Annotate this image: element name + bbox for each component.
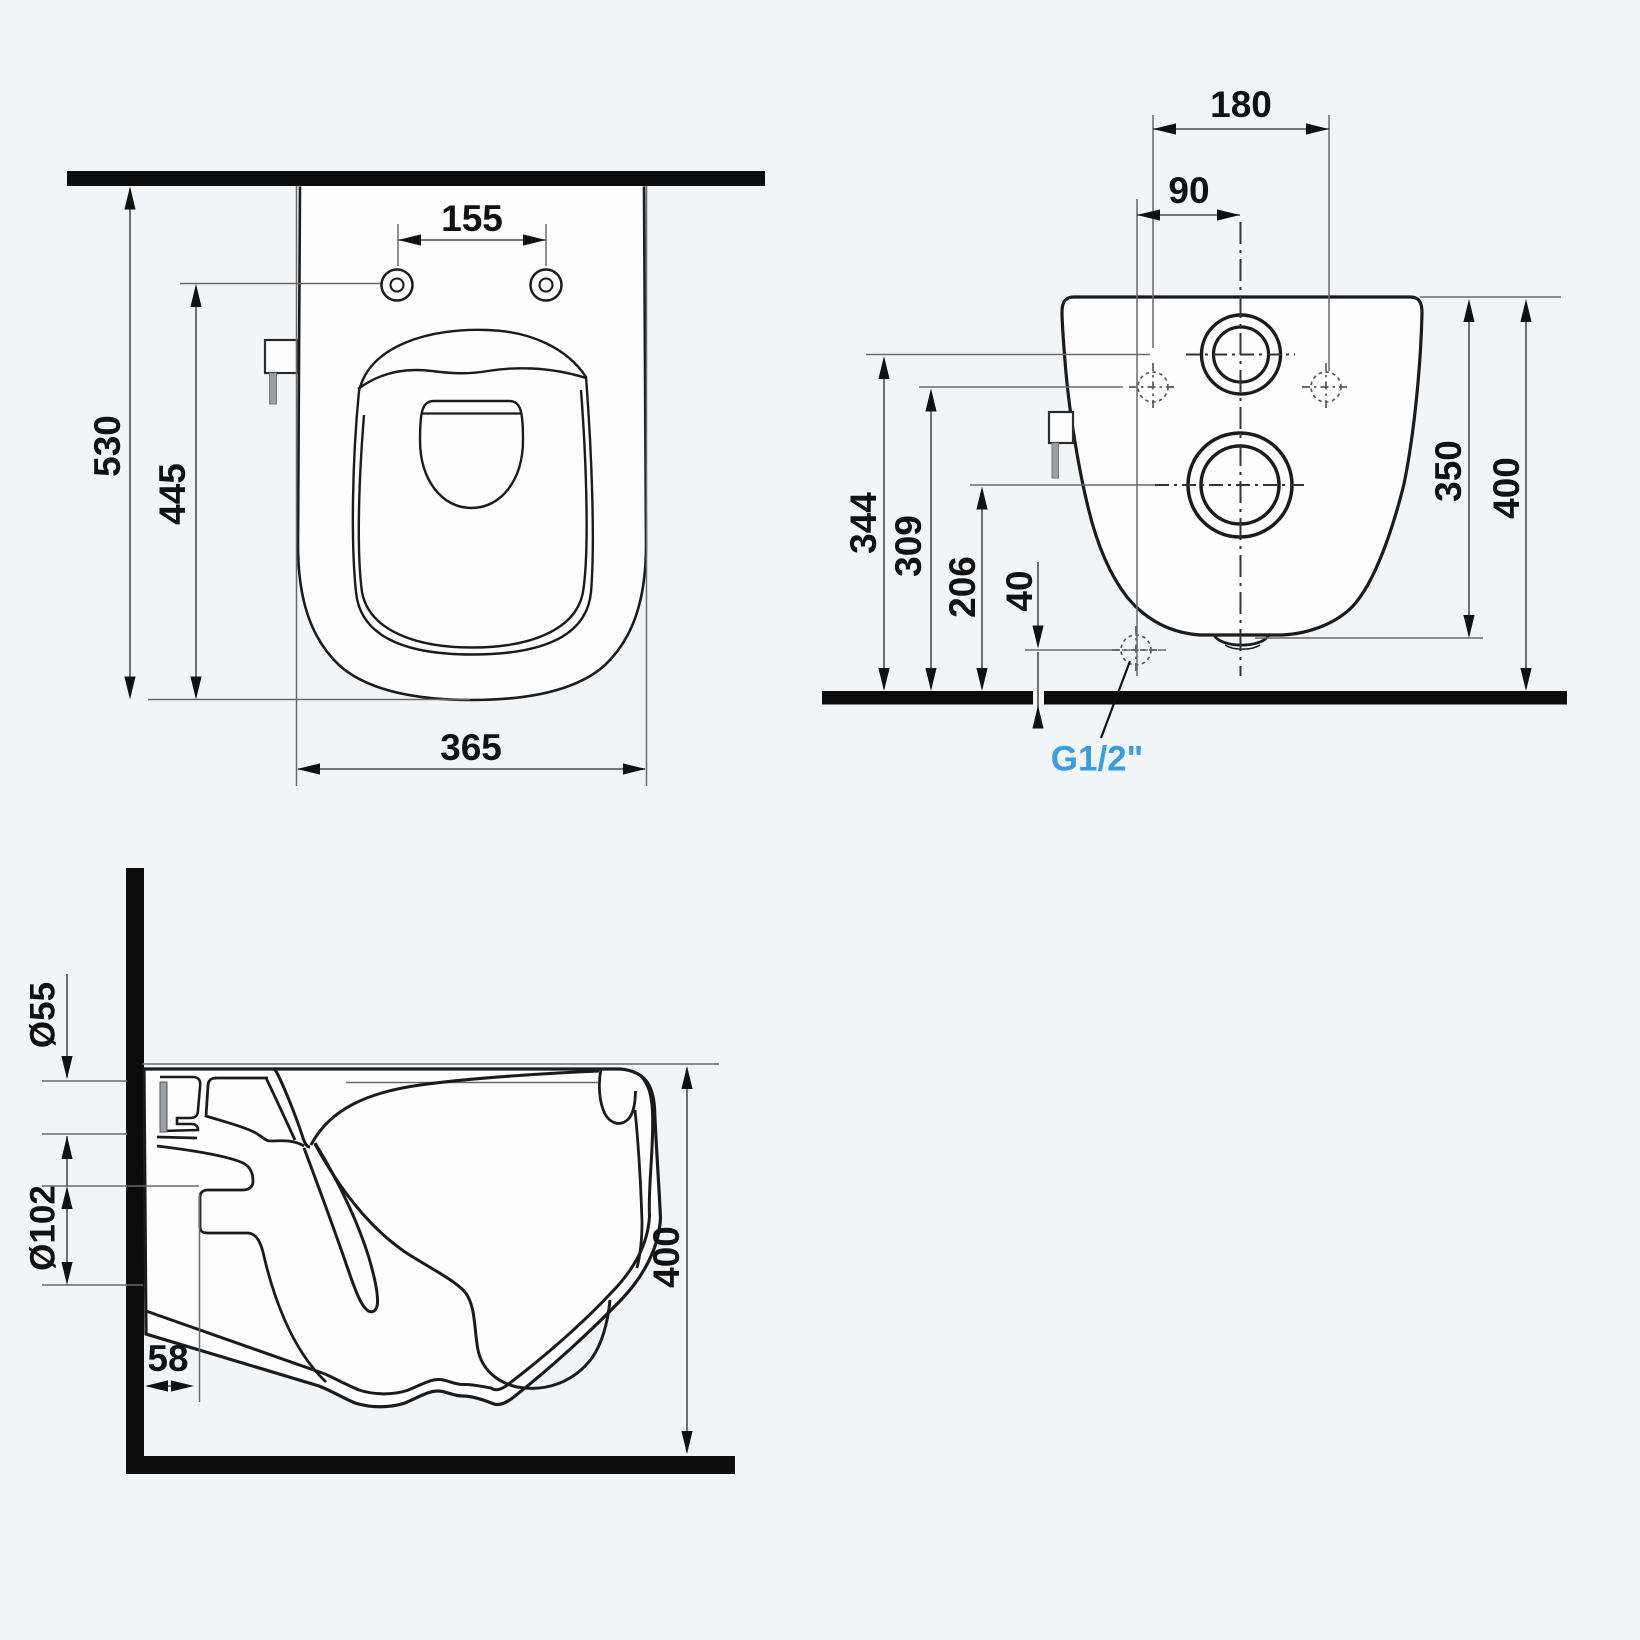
svg-text:180: 180	[1210, 84, 1272, 125]
svg-text:90: 90	[1168, 170, 1209, 211]
svg-text:Ø102: Ø102	[23, 1185, 62, 1271]
svg-text:445: 445	[152, 463, 193, 525]
svg-text:58: 58	[147, 1338, 188, 1379]
svg-text:40: 40	[999, 570, 1040, 611]
svg-text:344: 344	[843, 492, 884, 554]
svg-text:Ø55: Ø55	[23, 982, 62, 1048]
svg-text:206: 206	[942, 556, 983, 618]
svg-text:350: 350	[1428, 440, 1469, 502]
svg-text:309: 309	[888, 515, 929, 577]
svg-text:530: 530	[87, 415, 128, 477]
svg-text:400: 400	[646, 1226, 687, 1288]
svg-text:G1/2": G1/2"	[1051, 739, 1143, 778]
svg-text:155: 155	[441, 198, 503, 239]
svg-text:365: 365	[440, 727, 502, 768]
svg-text:400: 400	[1486, 457, 1527, 519]
